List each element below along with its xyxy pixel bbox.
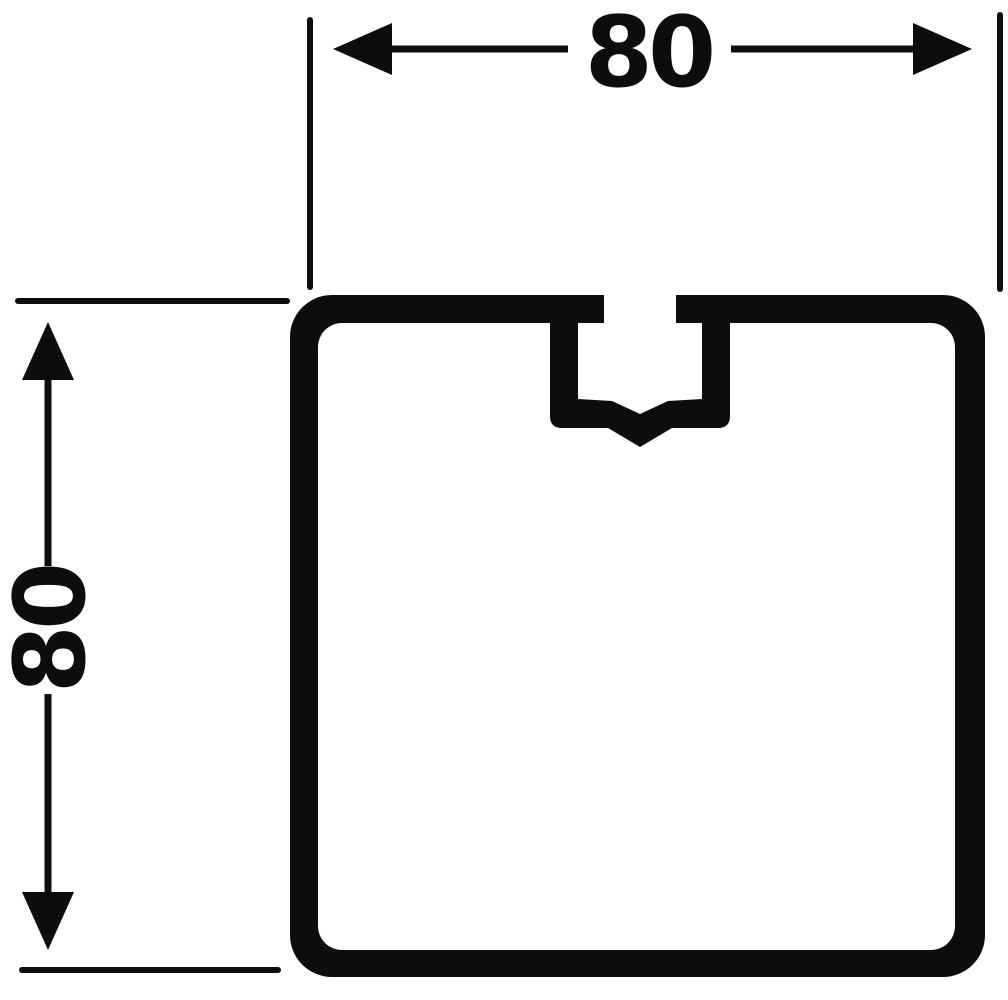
horizontal-dimension: 80 [310,0,1000,289]
arrowhead-right [913,23,972,75]
profile-cross-section [290,295,985,977]
vertical-dimension: 80 [0,301,287,970]
arrowhead-down [22,892,74,950]
drawing-canvas: 80 80 [0,0,1008,1000]
horizontal-dimension-label: 80 [585,0,712,110]
arrowhead-left [333,23,392,75]
arrowhead-up [22,322,74,380]
vertical-dimension-label: 80 [0,566,108,693]
technical-drawing: 80 80 [0,0,1008,1000]
